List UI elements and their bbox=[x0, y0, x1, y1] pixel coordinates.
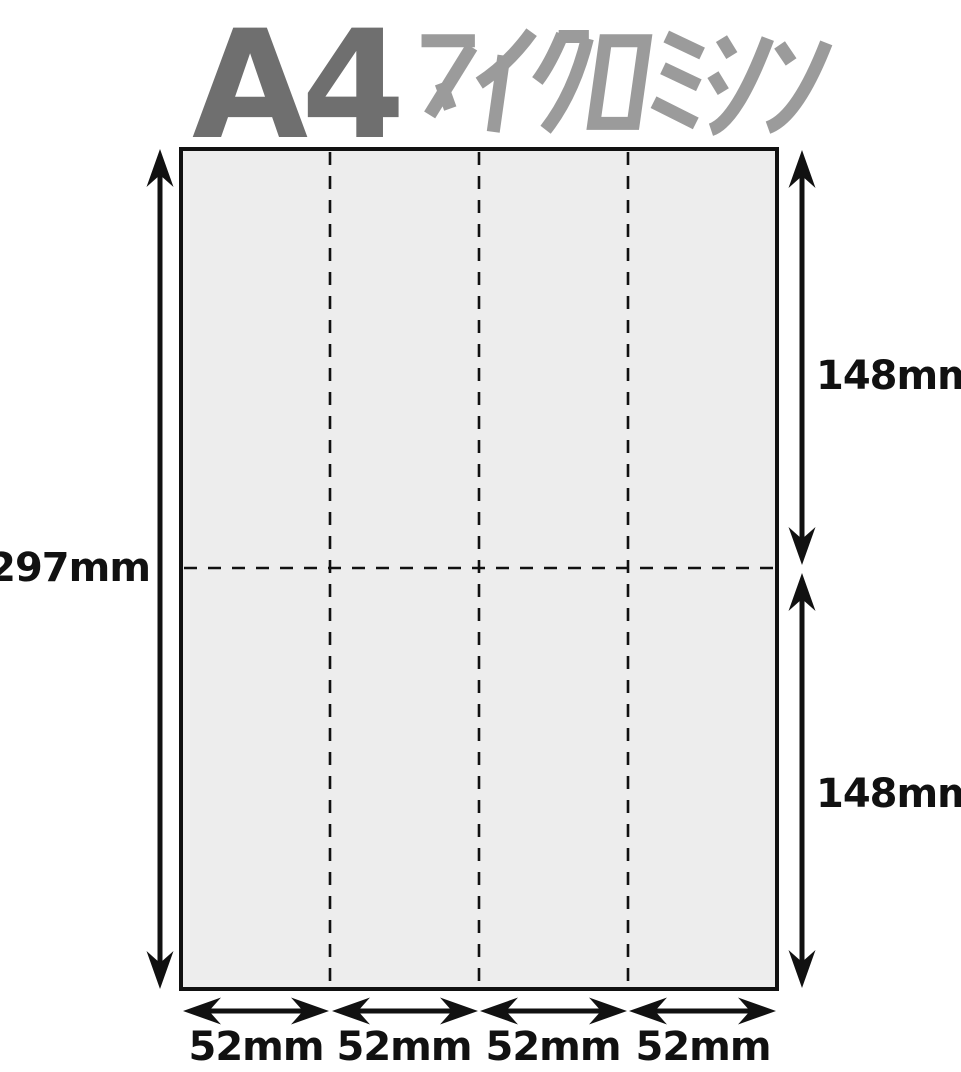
column-width-label-2: 52mm bbox=[336, 1024, 471, 1070]
column-width-arrow-3 bbox=[480, 998, 627, 1025]
half-height-top-label: 148mm bbox=[816, 353, 961, 399]
height-dimension-label: 297mm bbox=[0, 545, 150, 591]
katakana-ku-glyph bbox=[530, 34, 589, 129]
title-katakana-graphic bbox=[409, 32, 828, 132]
half-height-top-arrow bbox=[789, 150, 816, 565]
katakana-n-glyph bbox=[768, 43, 826, 128]
product-diagram-canvas: A4 bbox=[0, 0, 961, 1072]
katakana-ma-glyph bbox=[411, 41, 475, 115]
column-width-label-3: 52mm bbox=[485, 1024, 620, 1070]
half-height-bottom-label: 148mm bbox=[816, 771, 961, 817]
column-width-label-4: 52mm bbox=[635, 1024, 770, 1070]
column-width-label-1: 52mm bbox=[188, 1024, 323, 1070]
column-width-arrow-2 bbox=[332, 998, 478, 1025]
half-height-bottom-arrow bbox=[789, 573, 816, 988]
katakana-i-glyph bbox=[472, 32, 531, 132]
katakana-mi-glyph bbox=[651, 36, 708, 123]
column-width-arrow-1 bbox=[183, 998, 329, 1025]
column-width-arrow-4 bbox=[629, 998, 776, 1025]
katakana-ro-glyph bbox=[594, 41, 645, 124]
a4-perforation-diagram: A4 bbox=[0, 0, 961, 1072]
height-dimension-arrow bbox=[147, 149, 174, 989]
katakana-shi-glyph bbox=[705, 39, 768, 130]
